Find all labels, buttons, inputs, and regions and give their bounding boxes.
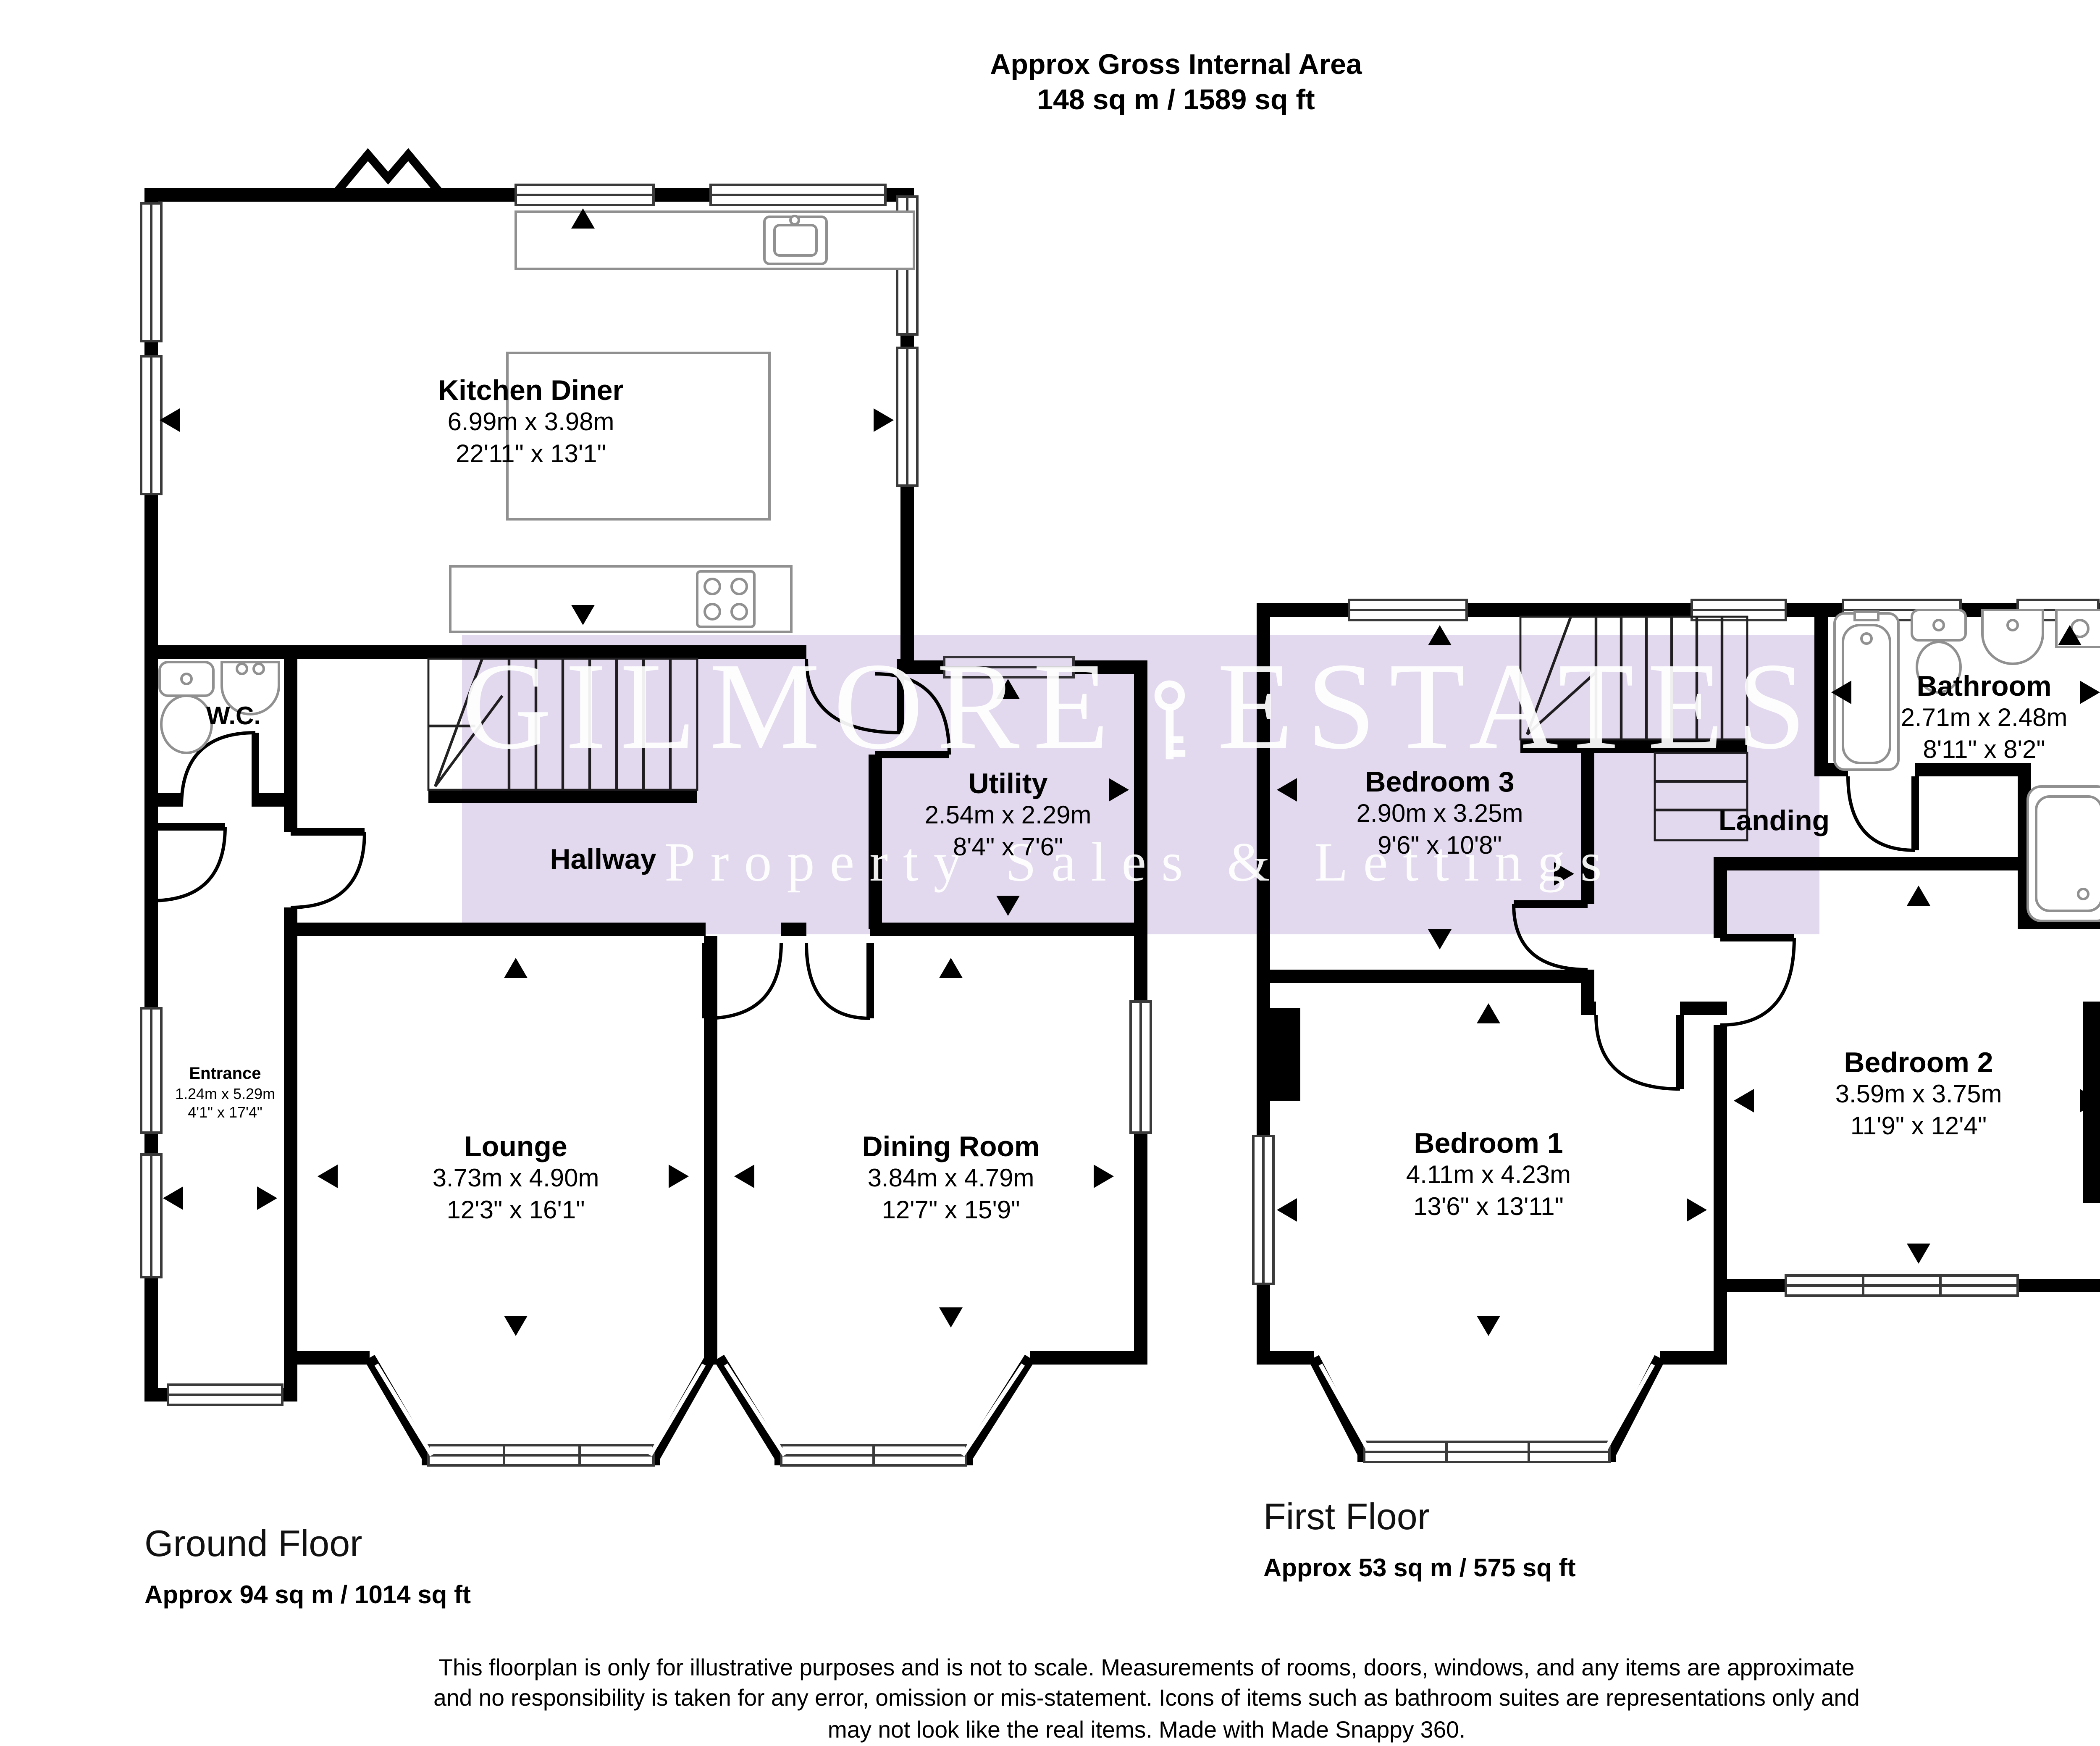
measure-arrow — [874, 408, 894, 432]
disclaimer: This floorplan is only for illustrative … — [386, 1654, 1907, 1746]
floorplan-page: Approx Gross Internal Area 148 sq m / 15… — [0, 0, 2100, 1733]
measure-arrow — [1907, 886, 1930, 906]
window — [1131, 1002, 1151, 1133]
door-bedroom1 — [1596, 1015, 1680, 1089]
stove-icon — [697, 571, 754, 627]
disclaimer-line3: may not look like the real items. Made w… — [828, 1717, 1466, 1742]
bay-window — [1364, 1442, 1609, 1462]
ground-floor-area: Approx 94 sq m / 1014 sq ft — [144, 1581, 471, 1610]
bay-window — [428, 1445, 654, 1465]
door-dining — [806, 943, 870, 1018]
measure-arrow — [160, 408, 180, 432]
window — [1786, 1275, 2018, 1296]
room-label-kitchen: Kitchen Diner 6.99m x 3.98m 22'11" x 13'… — [329, 373, 732, 471]
room-label-dining: Dining Room 3.84m x 4.79m 12'7" x 15'9" — [749, 1129, 1152, 1227]
measure-arrow — [1477, 1316, 1500, 1336]
measure-arrow — [257, 1186, 277, 1210]
measure-arrow — [939, 958, 963, 978]
ground-floor-caption: Ground Floor Approx 94 sq m / 1014 sq ft — [144, 1522, 471, 1610]
room-label-bathroom: Bathroom 2.71m x 2.48m 8'11" x 8'2" — [1841, 669, 2100, 767]
kitchen-sink-icon — [764, 216, 827, 264]
room-label-hallway: Hallway — [502, 842, 704, 877]
window — [168, 1385, 282, 1405]
room-label-bedroom2: Bedroom 2 3.59m x 3.75m 11'9" x 12'4" — [1717, 1045, 2100, 1143]
measure-arrow — [1477, 1003, 1500, 1023]
room-label-entrance: Entrance 1.24m x 5.29m 4'1" x 17'4" — [158, 1065, 292, 1122]
door-hall — [291, 832, 365, 907]
door-bedroom2 — [1720, 938, 1794, 1025]
measure-arrow — [939, 1307, 963, 1328]
first-floor-caption: First Floor Approx 53 sq m / 575 sq ft — [1263, 1496, 1576, 1583]
room-label-landing: Landing — [1673, 803, 1875, 839]
window — [1253, 1136, 1273, 1284]
room-label-bedroom3: Bedroom 3 2.90m x 3.25m 9'6" x 10'8" — [1238, 765, 1641, 862]
measure-arrow — [504, 1316, 528, 1336]
window — [711, 185, 885, 205]
measure-arrow — [163, 1186, 183, 1210]
ground-floor-title: Ground Floor — [144, 1522, 471, 1566]
window — [141, 1154, 161, 1277]
measure-arrow — [1907, 1244, 1930, 1264]
window — [141, 203, 161, 341]
window — [516, 185, 654, 205]
first-floor-area: Approx 53 sq m / 575 sq ft — [1263, 1554, 1576, 1583]
shower-icon — [2028, 786, 2100, 921]
chimney-breast — [1263, 1008, 1300, 1101]
bay-window — [781, 1445, 966, 1465]
measure-arrow — [504, 958, 528, 978]
room-label-wc: W.C. — [183, 702, 284, 734]
room-label-bedroom1: Bedroom 1 4.11m x 4.23m 13'6" x 13'11" — [1287, 1126, 1690, 1224]
door-front — [151, 827, 225, 901]
room-label-lounge: Lounge 3.73m x 4.90m 12'3" x 16'1" — [314, 1129, 717, 1227]
window — [1349, 600, 1467, 620]
disclaimer-line2: and no responsibility is taken for any e… — [433, 1686, 1860, 1711]
sink-icon — [1982, 610, 2043, 664]
window — [897, 348, 917, 486]
counter — [516, 212, 914, 269]
window — [141, 356, 161, 494]
disclaimer-line1: This floorplan is only for illustrative … — [438, 1655, 1854, 1680]
room-label-utility: Utility 2.54m x 2.29m 8'4" x 7'6" — [848, 766, 1168, 864]
first-floor-title: First Floor — [1263, 1496, 1576, 1539]
